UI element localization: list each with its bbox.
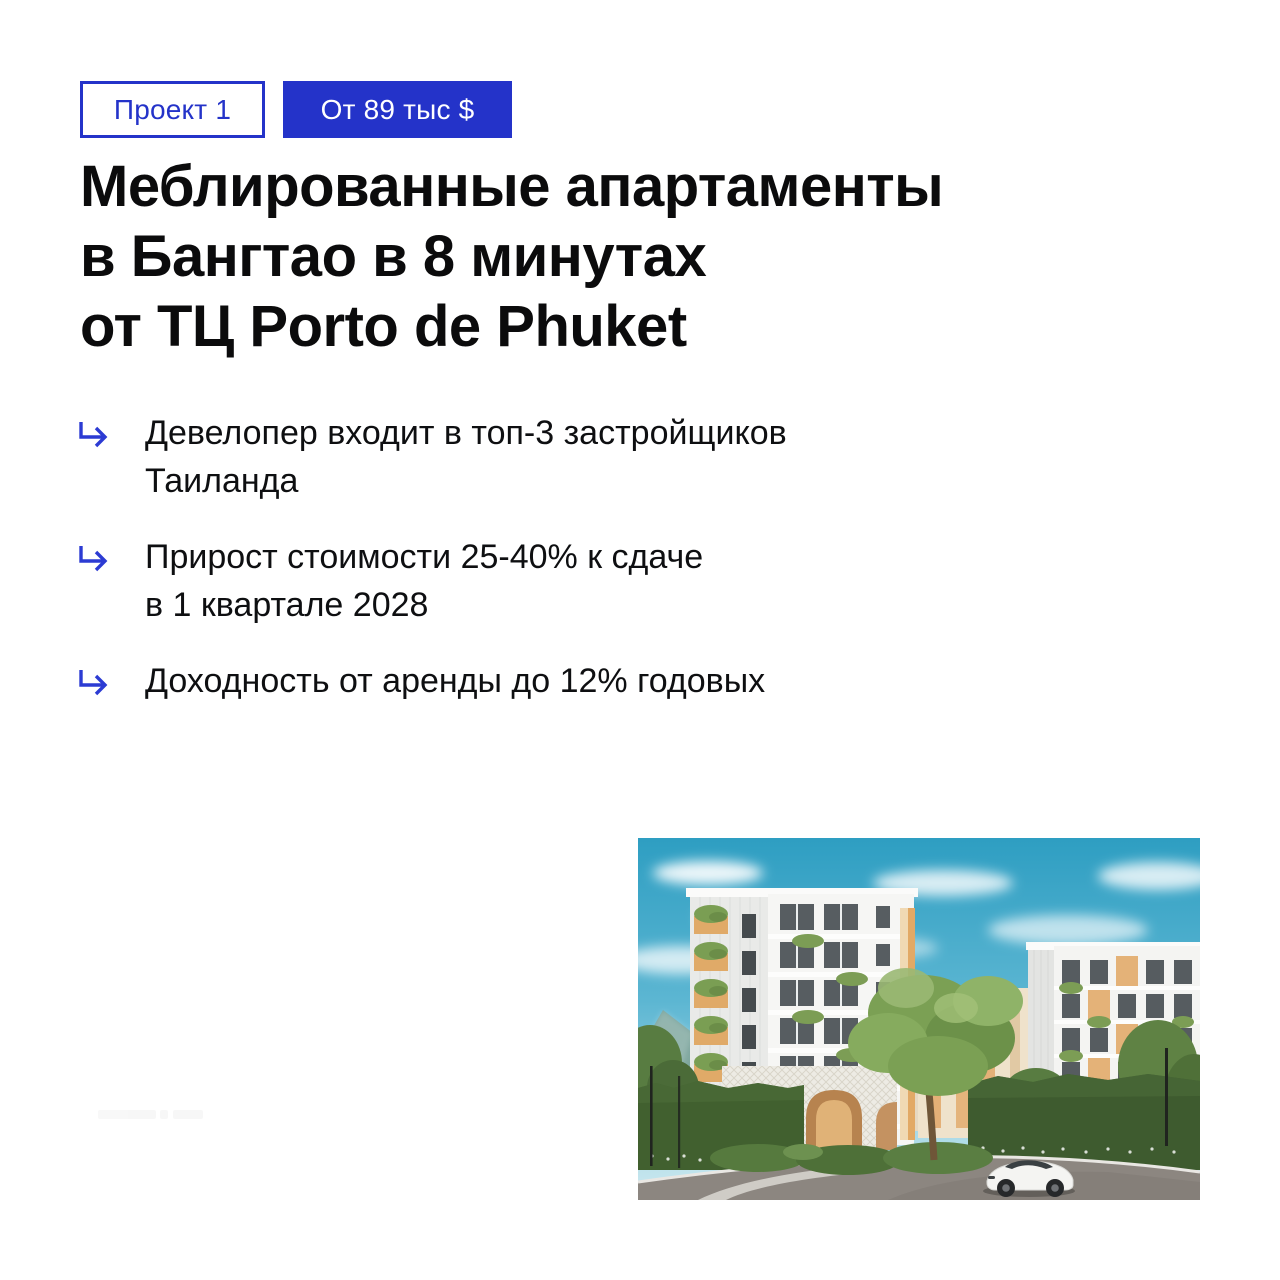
list-item: Девелопер входит в топ-3 застройщиков Та… <box>78 409 1018 505</box>
page-title-line: от ТЦ Porto de Phuket <box>80 292 943 362</box>
list-item-text: Прирост стоимости 25-40% к сдаче в 1 ква… <box>145 533 703 629</box>
price-badge: От 89 тыс $ <box>283 81 512 138</box>
page-root: { "colors": { "accent_blue": "#2433c9", … <box>0 0 1280 1280</box>
return-arrow-icon <box>78 544 112 574</box>
list-item: Доходность от аренды до 12% годовых <box>78 657 1018 705</box>
feature-list: Девелопер входит в топ-3 застройщиков Та… <box>78 409 1018 733</box>
page-title: Меблированные апартаменты в Бангтао в 8 … <box>80 152 943 362</box>
list-item-text: Девелопер входит в топ-3 застройщиков Та… <box>145 409 787 505</box>
faint-watermark <box>98 1106 228 1120</box>
badge-row: Проект 1 От 89 тыс $ <box>80 81 512 138</box>
page-title-line: в Бангтао в 8 минутах <box>80 222 943 292</box>
return-arrow-icon <box>78 668 112 698</box>
page-title-line: Меблированные апартаменты <box>80 152 943 222</box>
list-item: Прирост стоимости 25-40% к сдаче в 1 ква… <box>78 533 1018 629</box>
property-render-photo <box>638 838 1200 1200</box>
project-badge: Проект 1 <box>80 81 265 138</box>
list-item-text: Доходность от аренды до 12% годовых <box>145 657 765 705</box>
return-arrow-icon <box>78 420 112 450</box>
front-bushes <box>710 1142 993 1175</box>
